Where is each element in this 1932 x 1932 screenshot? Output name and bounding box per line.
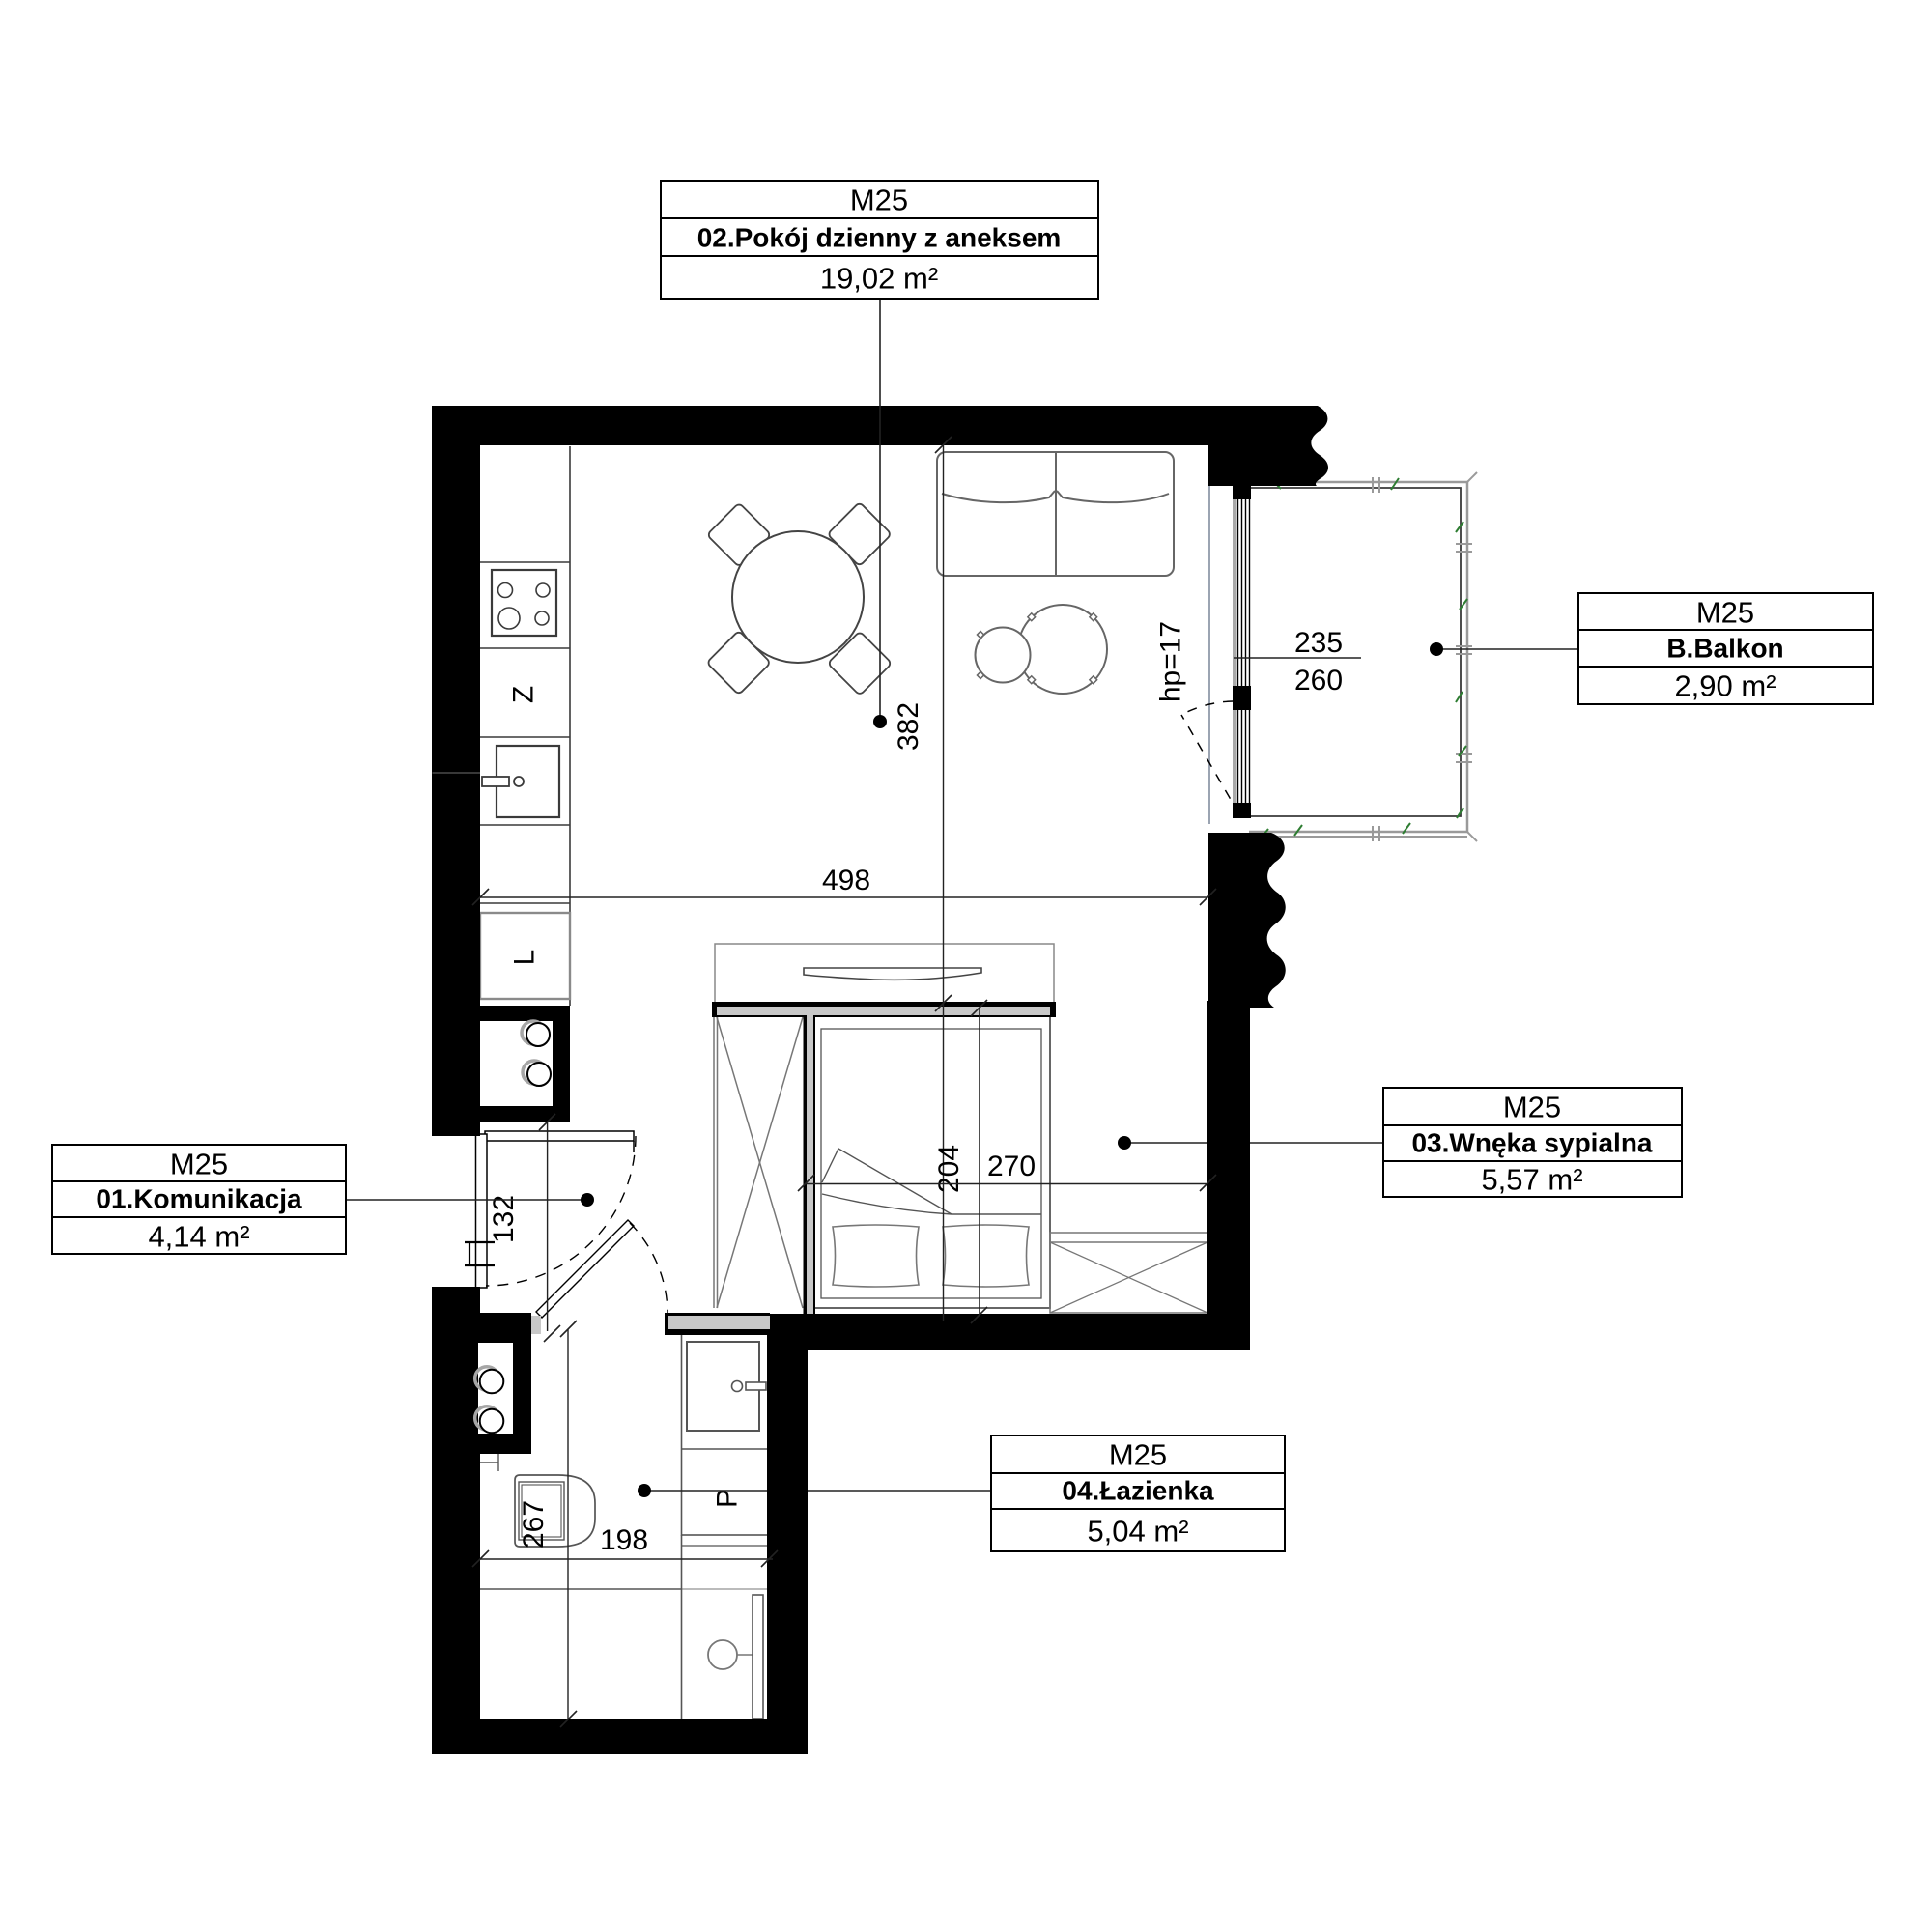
svg-text:235: 235 — [1294, 627, 1343, 659]
svg-text:5,57 m²: 5,57 m² — [1481, 1163, 1582, 1197]
svg-text:267: 267 — [518, 1500, 550, 1548]
svg-text:M25: M25 — [850, 184, 908, 217]
svg-text:5,04 m²: 5,04 m² — [1087, 1515, 1188, 1548]
svg-text:M25: M25 — [170, 1148, 228, 1181]
svg-text:hp=17: hp=17 — [1155, 621, 1187, 702]
svg-text:M25: M25 — [1109, 1438, 1167, 1472]
svg-text:03.Wnęka sypialna: 03.Wnęka sypialna — [1411, 1128, 1652, 1158]
svg-text:204: 204 — [933, 1145, 965, 1193]
svg-text:01.Komunikacja: 01.Komunikacja — [96, 1184, 302, 1214]
svg-text:260: 260 — [1294, 665, 1343, 696]
svg-text:M25: M25 — [1503, 1091, 1561, 1124]
svg-text:270: 270 — [987, 1151, 1036, 1182]
svg-text:19,02 m²: 19,02 m² — [820, 262, 938, 296]
svg-text:Z: Z — [508, 686, 540, 703]
svg-text:198: 198 — [600, 1524, 648, 1556]
svg-text:L: L — [509, 950, 541, 966]
svg-text:498: 498 — [822, 865, 870, 896]
svg-text:382: 382 — [893, 702, 924, 751]
svg-text:2,90 m²: 2,90 m² — [1674, 669, 1776, 703]
svg-text:B.Balkon: B.Balkon — [1666, 634, 1783, 664]
svg-text:04.Łazienka: 04.Łazienka — [1062, 1476, 1214, 1506]
svg-text:132: 132 — [488, 1195, 520, 1243]
svg-text:M25: M25 — [1696, 596, 1754, 630]
svg-text:4,14 m²: 4,14 m² — [148, 1220, 249, 1254]
svg-text:P: P — [712, 1489, 744, 1508]
svg-text:02.Pokój dzienny z aneksem: 02.Pokój dzienny z aneksem — [697, 223, 1062, 253]
